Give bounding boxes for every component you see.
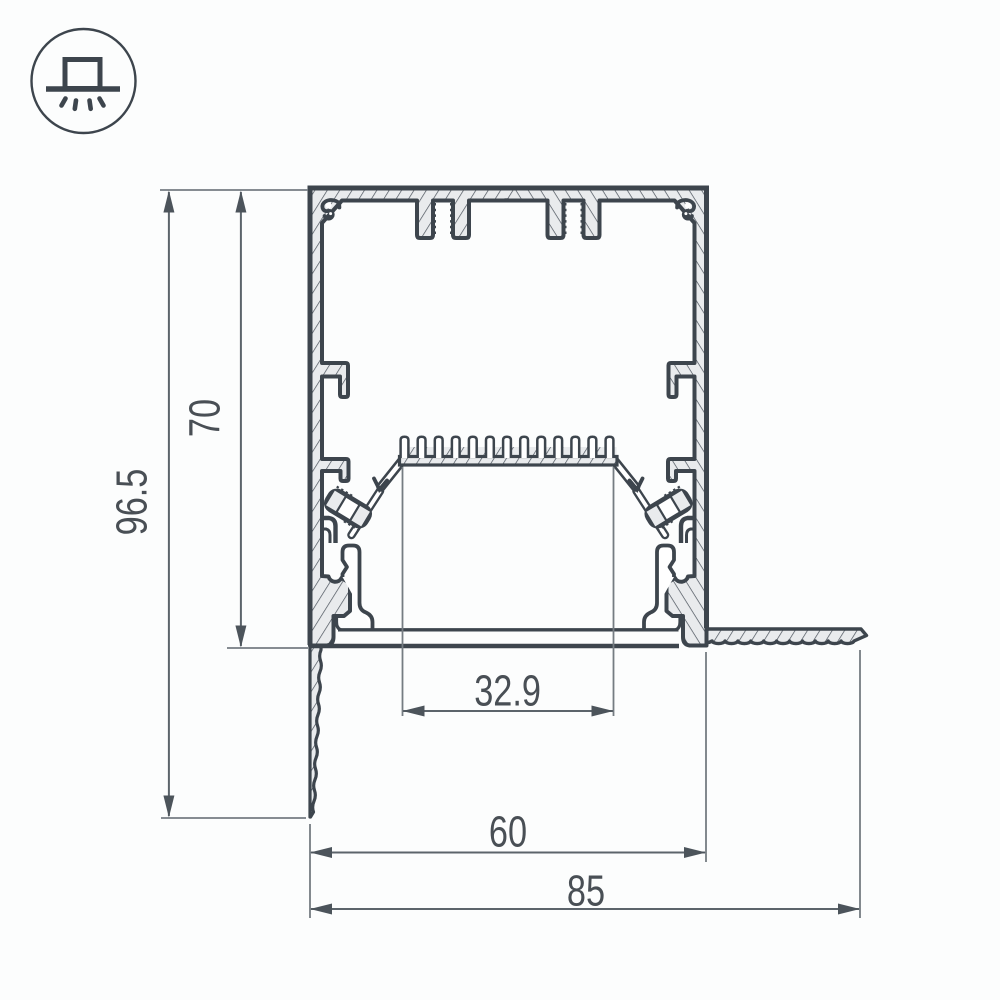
svg-text:85: 85 <box>567 866 605 915</box>
svg-text:96.5: 96.5 <box>107 469 156 536</box>
svg-text:32.9: 32.9 <box>474 666 541 715</box>
svg-text:60: 60 <box>489 807 527 856</box>
svg-text:70: 70 <box>180 399 229 437</box>
